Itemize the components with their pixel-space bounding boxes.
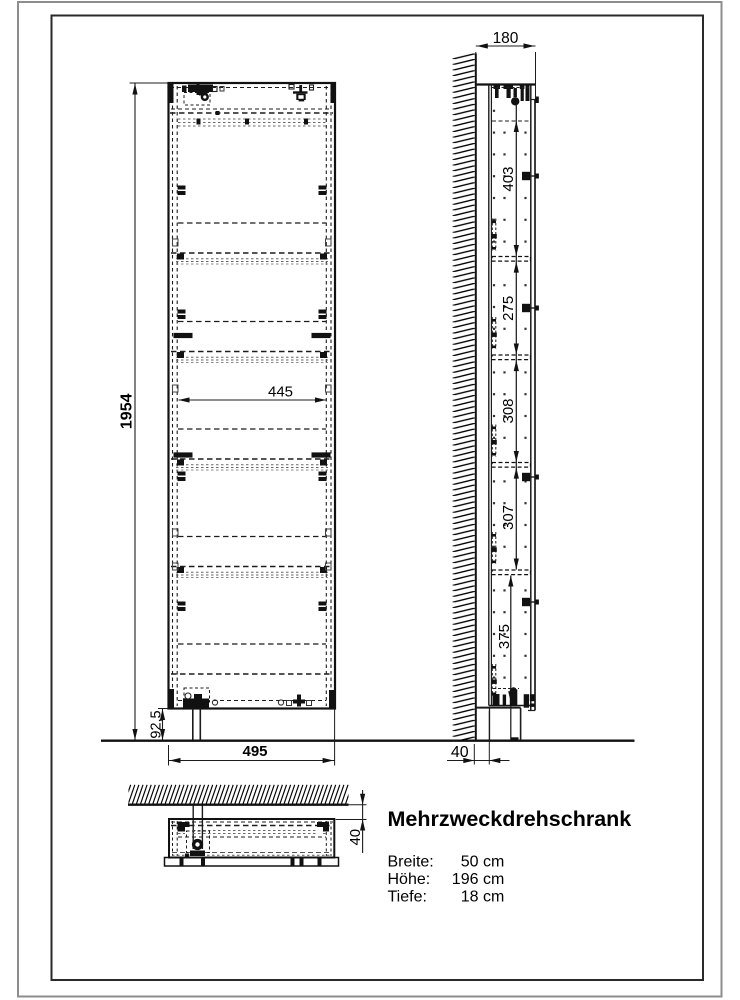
svg-text:Höhe:: Höhe: — [388, 871, 431, 888]
svg-text:Tiefe:: Tiefe: — [388, 889, 427, 906]
svg-text:1954: 1954 — [119, 393, 136, 429]
svg-text:Breite:: Breite: — [388, 854, 434, 871]
svg-text:307: 307 — [500, 505, 517, 530]
svg-text:180: 180 — [493, 30, 519, 47]
svg-text:Mehrzweckdrehschrank: Mehrzweckdrehschrank — [388, 807, 632, 831]
svg-text:40: 40 — [451, 744, 469, 761]
svg-text:cm: cm — [483, 854, 504, 871]
svg-text:403: 403 — [500, 167, 517, 192]
svg-text:196: 196 — [452, 871, 479, 888]
svg-text:92,5: 92,5 — [149, 710, 165, 738]
svg-text:445: 445 — [268, 384, 293, 401]
svg-text:cm: cm — [483, 871, 504, 888]
svg-text:40: 40 — [347, 829, 364, 846]
svg-text:50: 50 — [461, 854, 479, 871]
svg-text:275: 275 — [500, 296, 517, 321]
svg-text:375: 375 — [496, 624, 513, 649]
svg-text:18: 18 — [461, 889, 479, 906]
svg-text:cm: cm — [483, 889, 504, 906]
svg-text:495: 495 — [242, 743, 267, 760]
svg-text:308: 308 — [500, 398, 517, 423]
